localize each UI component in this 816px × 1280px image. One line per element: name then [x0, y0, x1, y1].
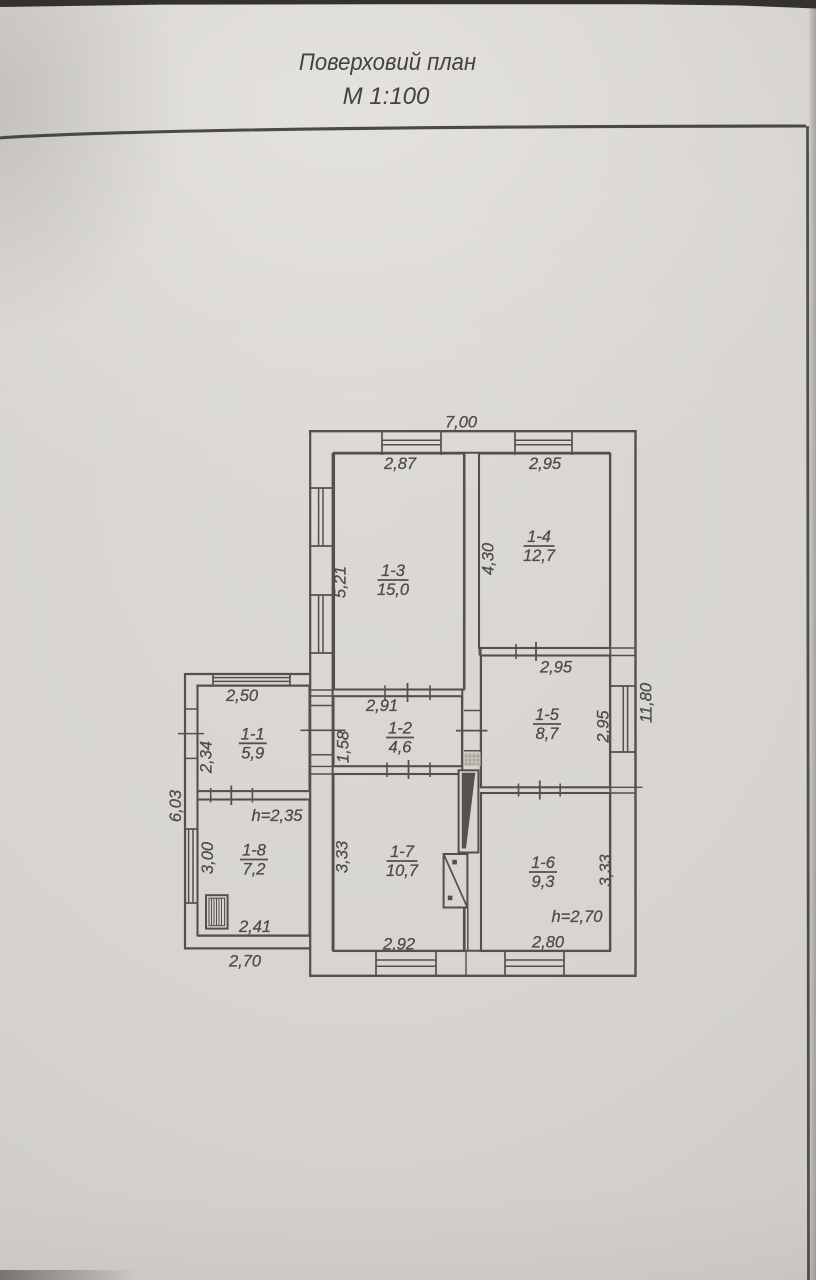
- svg-text:1-8: 1-8: [242, 842, 267, 860]
- svg-text:2,70: 2,70: [228, 953, 262, 971]
- svg-text:15,0: 15,0: [377, 581, 410, 599]
- svg-text:2,34: 2,34: [197, 741, 215, 774]
- svg-text:10,7: 10,7: [386, 862, 419, 880]
- svg-text:5,9: 5,9: [241, 745, 264, 763]
- svg-text:2,95: 2,95: [594, 710, 612, 744]
- svg-text:1-3: 1-3: [381, 562, 406, 580]
- svg-text:2,50: 2,50: [225, 687, 259, 705]
- svg-text:2,92: 2,92: [382, 936, 415, 954]
- svg-text:2,80: 2,80: [531, 934, 565, 952]
- svg-text:1-5: 1-5: [535, 706, 560, 724]
- svg-text:2,91: 2,91: [365, 697, 398, 715]
- svg-text:2,87: 2,87: [383, 455, 417, 473]
- svg-text:2,95: 2,95: [539, 659, 573, 677]
- svg-text:1-7: 1-7: [390, 843, 415, 861]
- svg-text:5,21: 5,21: [331, 566, 349, 598]
- svg-text:3,33: 3,33: [333, 840, 351, 873]
- svg-text:1-2: 1-2: [388, 720, 412, 738]
- svg-text:6,03: 6,03: [167, 789, 185, 822]
- svg-text:1-4: 1-4: [527, 528, 551, 546]
- svg-text:h=2,35: h=2,35: [252, 807, 304, 825]
- svg-text:3,33: 3,33: [597, 854, 615, 887]
- svg-text:7,2: 7,2: [243, 861, 266, 879]
- svg-text:8,7: 8,7: [536, 725, 560, 743]
- svg-text:1-6: 1-6: [531, 854, 556, 872]
- svg-text:2,41: 2,41: [238, 918, 271, 936]
- svg-text:4,30: 4,30: [479, 542, 497, 575]
- svg-text:h=2,70: h=2,70: [552, 908, 604, 926]
- svg-text:1-1: 1-1: [241, 725, 265, 743]
- svg-text:1,58: 1,58: [334, 730, 352, 763]
- svg-text:9,3: 9,3: [532, 873, 556, 891]
- svg-text:3,00: 3,00: [199, 841, 217, 874]
- svg-text:12,7: 12,7: [523, 547, 556, 565]
- svg-text:2,95: 2,95: [528, 455, 562, 473]
- svg-text:4,6: 4,6: [389, 739, 413, 757]
- svg-text:11,80: 11,80: [637, 682, 655, 723]
- svg-text:7,00: 7,00: [445, 414, 478, 432]
